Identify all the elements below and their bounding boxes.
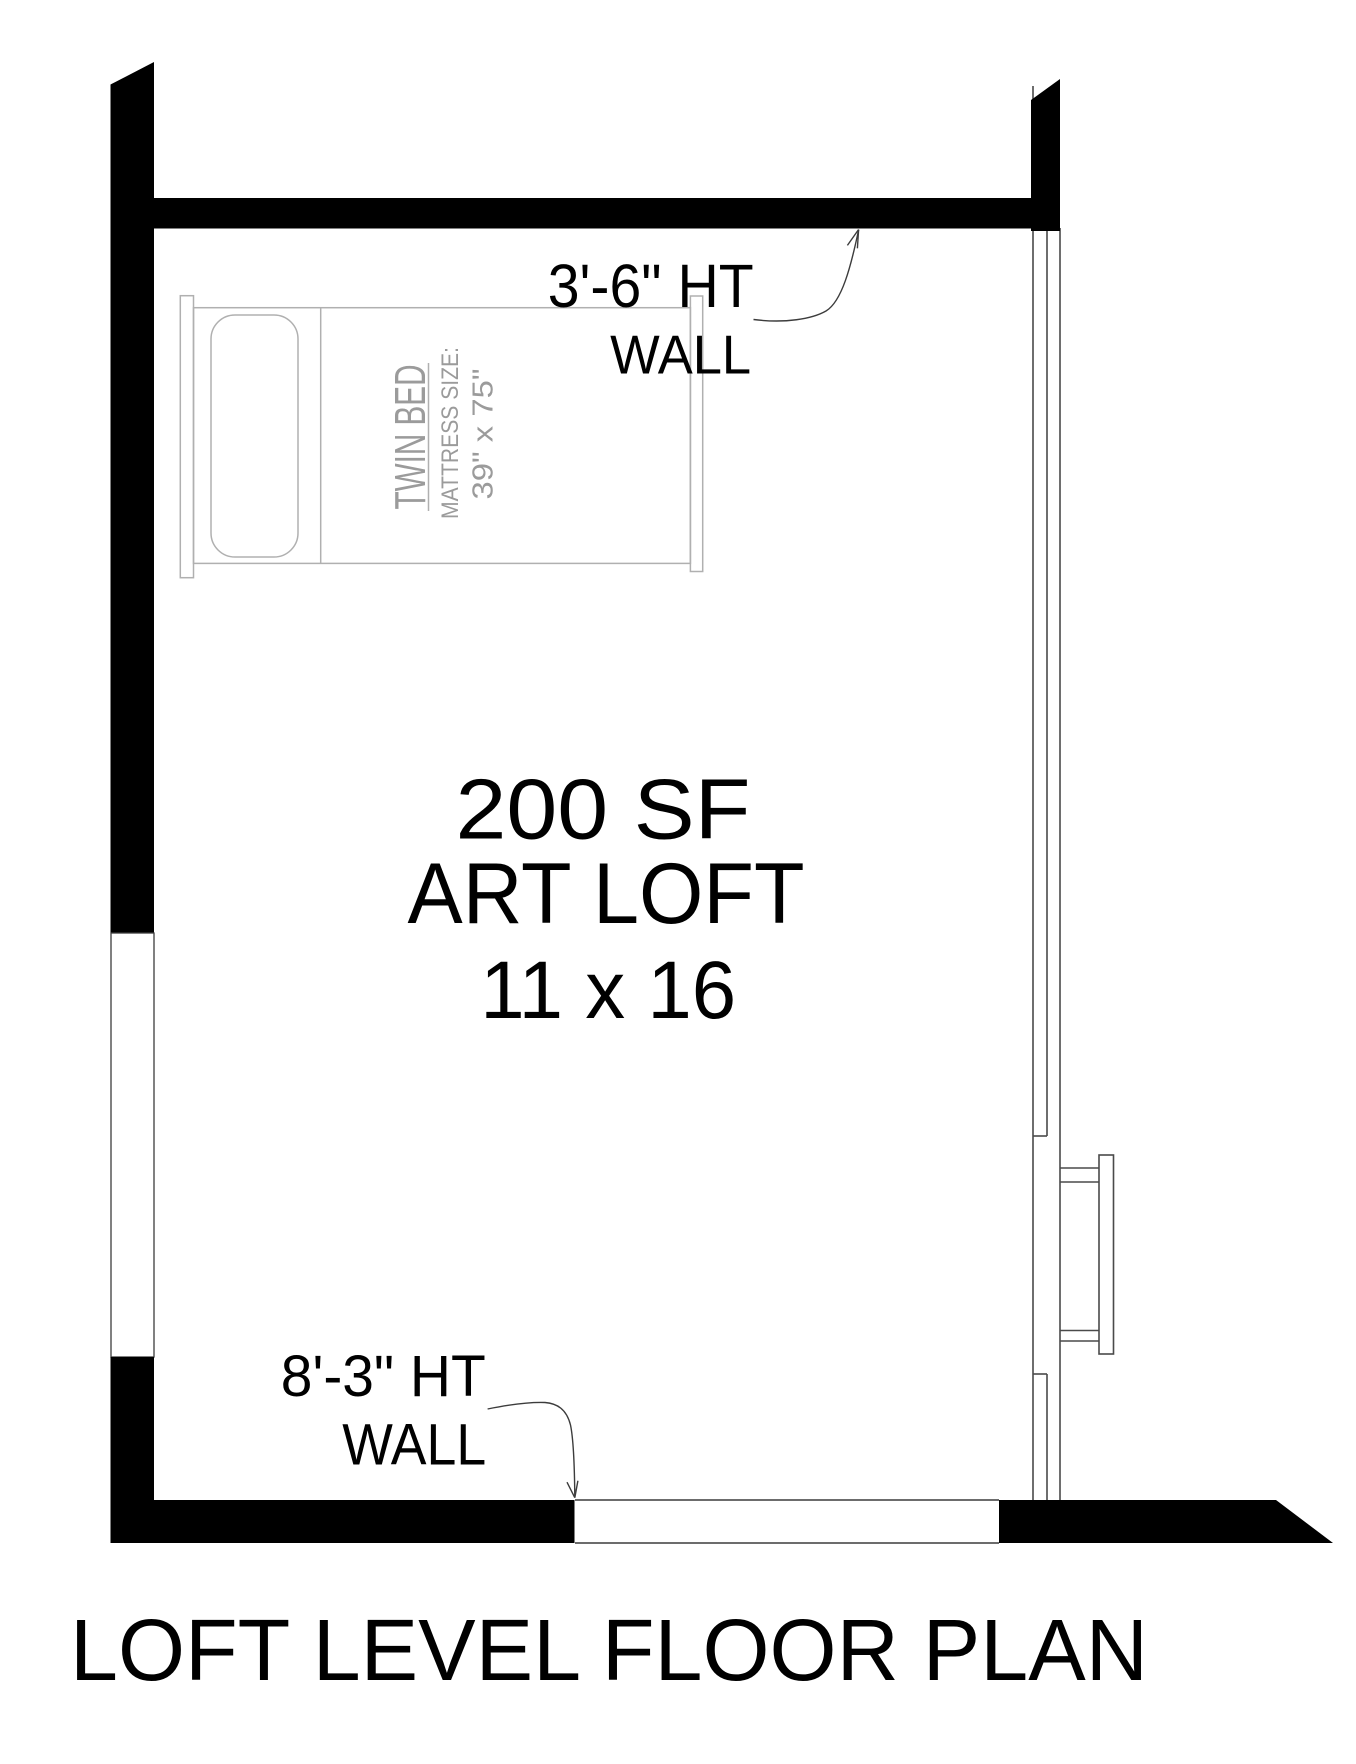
svg-text:MATTRESS SIZE:: MATTRESS SIZE: — [437, 347, 464, 519]
svg-text:ART LOFT: ART LOFT — [408, 846, 805, 942]
svg-text:LOFT LEVEL FLOOR PLAN: LOFT LEVEL FLOOR PLAN — [70, 1602, 1148, 1699]
svg-text:TWIN BED: TWIN BED — [386, 365, 435, 510]
svg-text:11 x 16: 11 x 16 — [480, 945, 736, 1036]
svg-text:WALL: WALL — [342, 1413, 486, 1478]
svg-text:WALL: WALL — [610, 323, 751, 385]
svg-text:3'-6" HT: 3'-6" HT — [548, 252, 754, 320]
svg-text:8'-3" HT: 8'-3" HT — [281, 1344, 486, 1409]
svg-text:200 SF: 200 SF — [456, 762, 751, 857]
svg-text:39" x 75": 39" x 75" — [468, 369, 500, 500]
